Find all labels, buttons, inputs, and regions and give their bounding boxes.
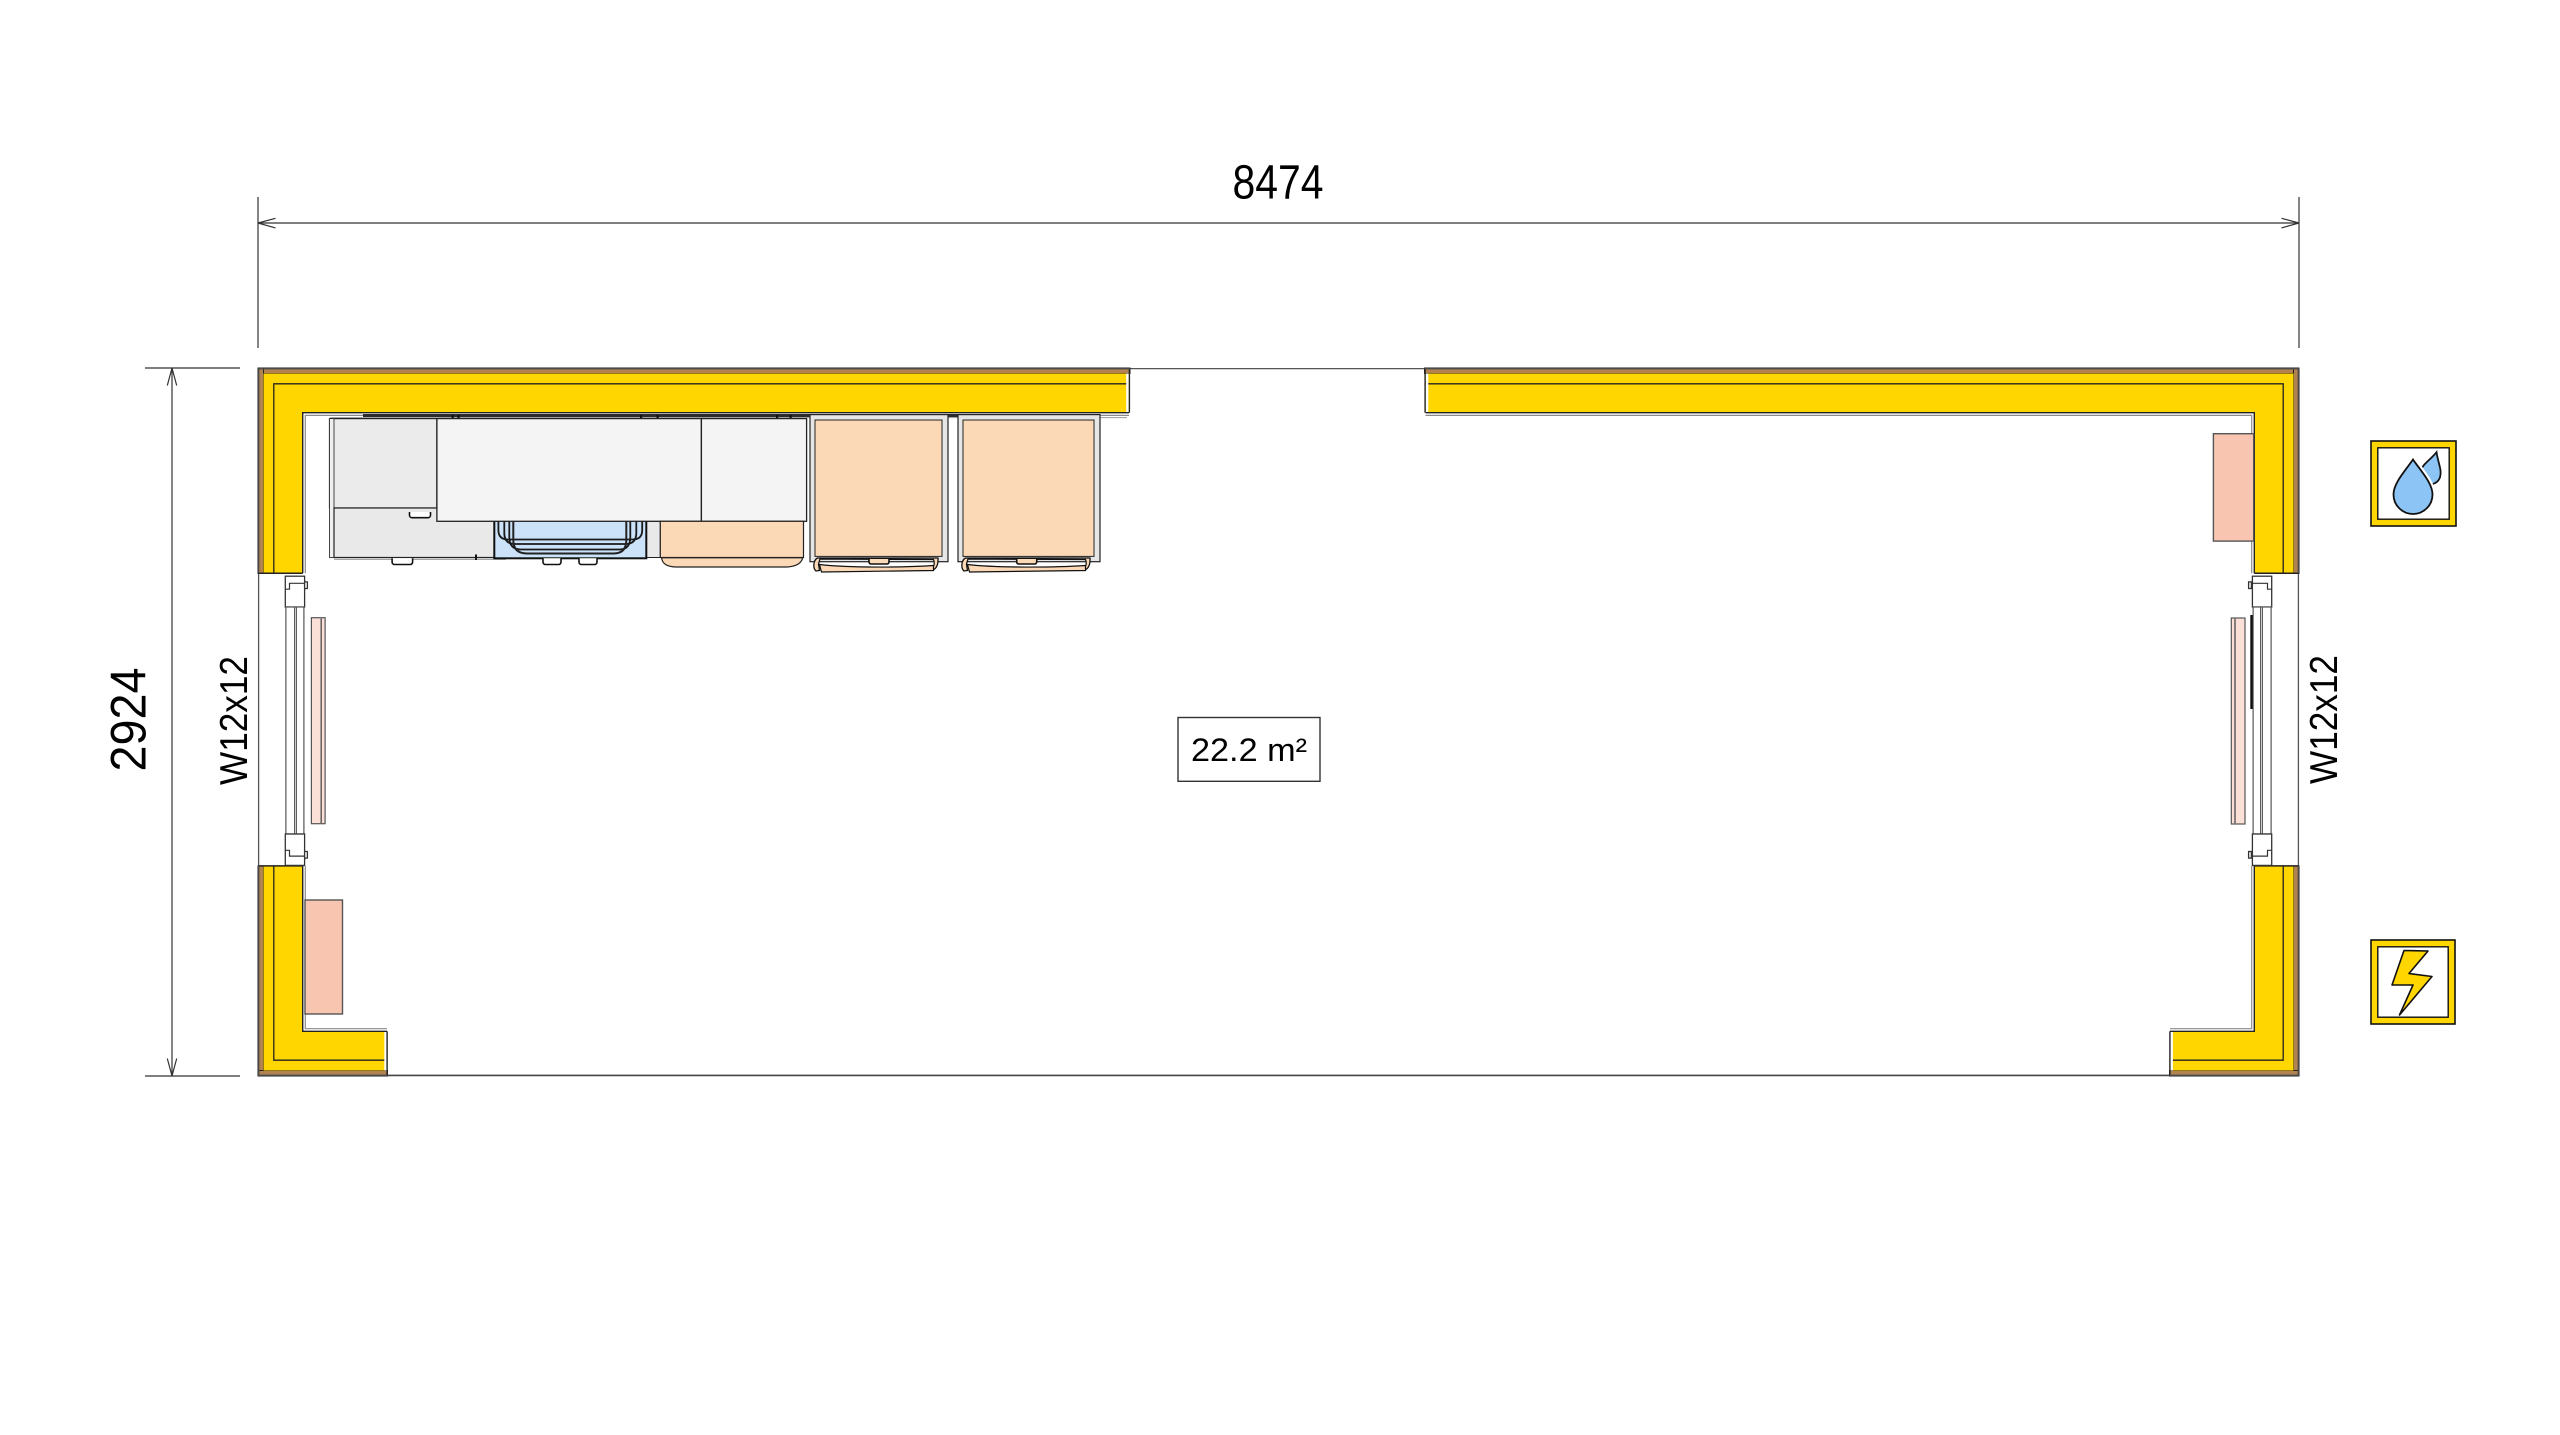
svg-text:2924: 2924 bbox=[101, 668, 157, 772]
svg-text:W12x12: W12x12 bbox=[2303, 655, 2346, 784]
svg-text:22.2 m²: 22.2 m² bbox=[1191, 732, 1307, 768]
svg-text:W12x12: W12x12 bbox=[213, 656, 256, 785]
svg-text:8474: 8474 bbox=[1233, 157, 1324, 210]
